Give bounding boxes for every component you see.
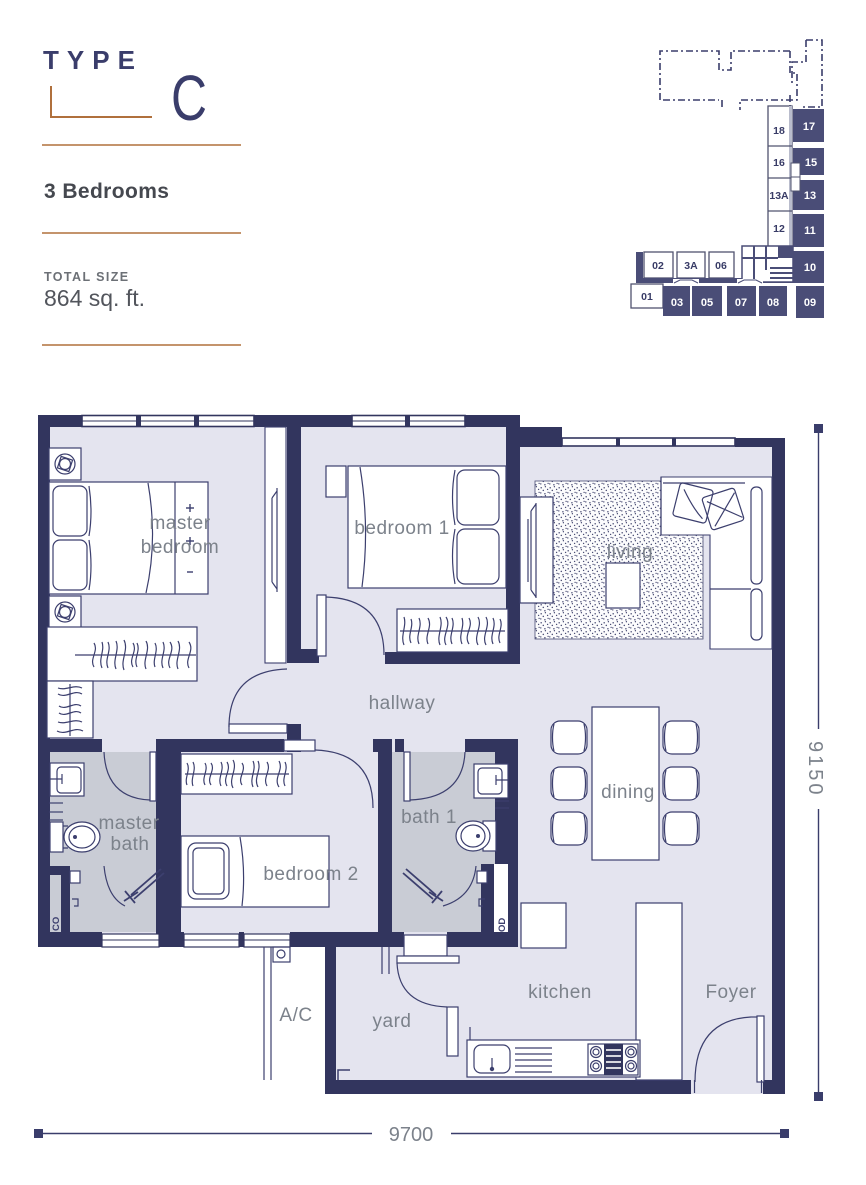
svg-text:15: 15 [805,157,817,169]
svg-text:master: master [149,513,210,534]
svg-text:dining: dining [601,782,655,803]
svg-text:C: C [171,62,207,134]
svg-text:CO: CO [51,917,62,931]
svg-text:05: 05 [701,297,713,309]
svg-text:3A: 3A [684,260,698,272]
svg-text:03: 03 [671,297,683,309]
svg-text:bedroom 2: bedroom 2 [263,864,358,885]
svg-text:yard: yard [373,1011,412,1032]
svg-text:bedroom: bedroom [141,537,220,558]
svg-text:living: living [607,542,653,563]
svg-text:01: 01 [641,291,653,303]
svg-text:bedroom 1: bedroom 1 [354,518,449,539]
svg-text:hallway: hallway [369,693,436,714]
svg-text:9700: 9700 [389,1124,434,1146]
svg-text:18: 18 [773,125,785,137]
svg-text:10: 10 [804,262,816,274]
svg-text:02: 02 [652,260,664,272]
svg-text:12: 12 [773,223,785,235]
svg-text:13: 13 [804,190,816,202]
svg-text:master: master [98,813,159,834]
svg-text:bath 1: bath 1 [401,807,457,828]
svg-text:07: 07 [735,297,747,309]
svg-text:OD: OD [497,918,508,932]
svg-text:08: 08 [767,297,779,309]
svg-text:16: 16 [773,157,785,169]
svg-text:9150: 9150 [804,741,826,798]
svg-text:A/C: A/C [279,1005,312,1026]
svg-text:TYPE: TYPE [43,45,143,75]
svg-text:Foyer: Foyer [705,982,756,1003]
svg-text:TOTAL SIZE: TOTAL SIZE [44,270,130,284]
svg-text:17: 17 [803,121,815,133]
svg-text:864 sq. ft.: 864 sq. ft. [44,285,145,311]
svg-text:bath: bath [111,834,150,855]
svg-text:06: 06 [715,260,727,272]
svg-text:13A: 13A [769,190,789,202]
svg-text:11: 11 [804,225,816,237]
svg-text:3 Bedrooms: 3 Bedrooms [44,180,169,203]
svg-text:kitchen: kitchen [528,982,592,1003]
svg-text:09: 09 [804,297,816,309]
